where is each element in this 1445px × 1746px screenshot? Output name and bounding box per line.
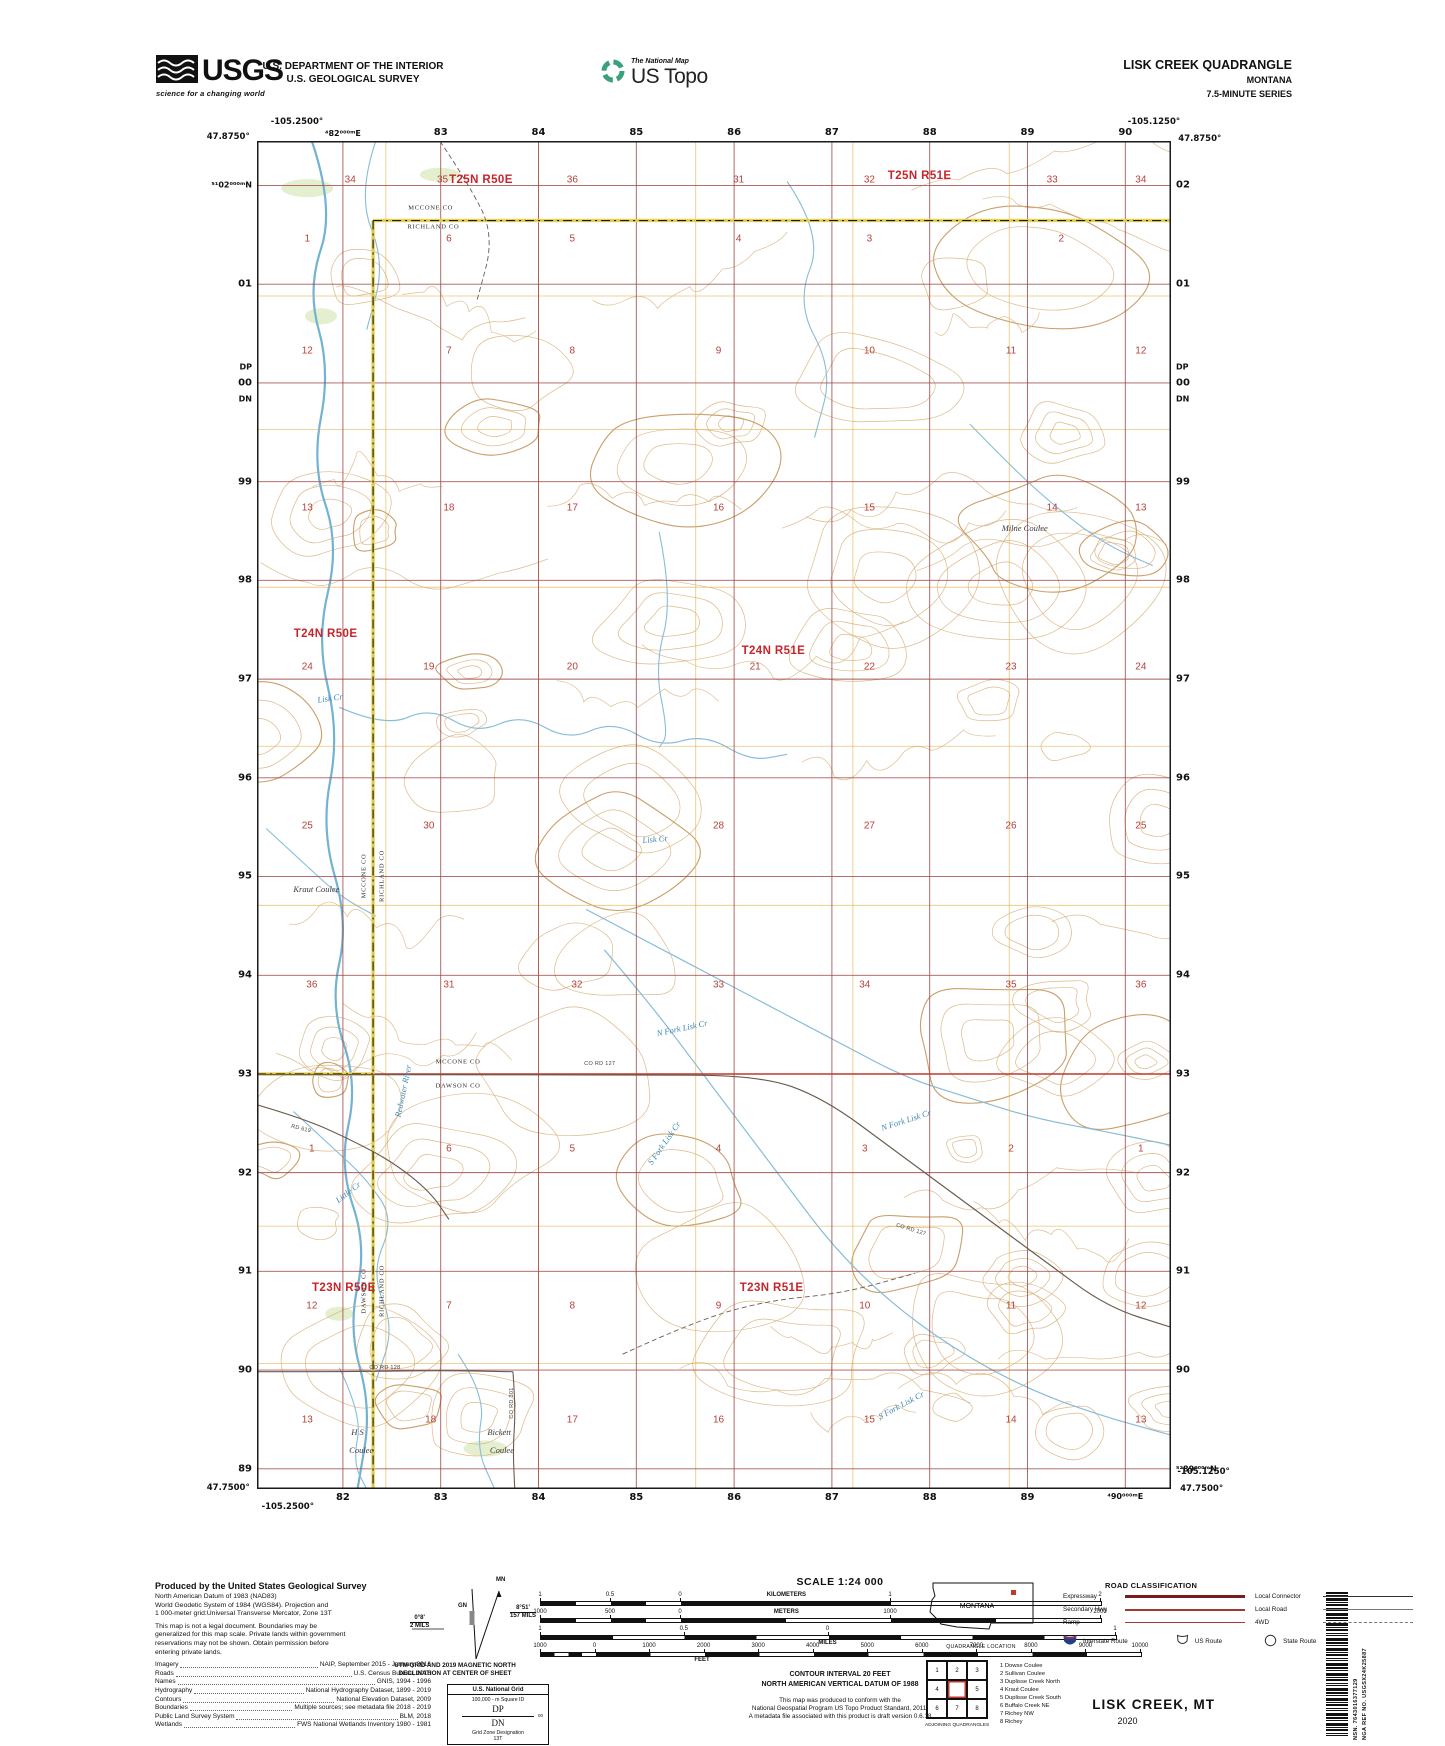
usng-subtitle: 100,000 - m Square ID — [448, 1697, 548, 1703]
credit-row: ContoursNational Elevation Dataset, 2009 — [155, 1696, 431, 1705]
grid-label-bottom: 89 — [1021, 1492, 1035, 1503]
grid-label-left: ⁵¹02⁰⁰⁰ᵐN — [211, 181, 252, 190]
grid-label-top: 89 — [1021, 127, 1035, 138]
shield-label: State Route — [1283, 1638, 1316, 1645]
grid-label-left: 01 — [238, 279, 252, 290]
grid-label-bottom: 83 — [434, 1492, 448, 1503]
datum-text: North American Datum of 1983 (NAD83)Worl… — [155, 1593, 431, 1619]
grid-label-right: 92 — [1176, 1167, 1190, 1178]
produced-by-title: Produced by the United States Geological… — [155, 1581, 431, 1591]
usng-gzd-value: 13T — [448, 1736, 548, 1742]
grid-label-bottom: 84 — [532, 1492, 546, 1503]
shield-label: Interstate Route — [1083, 1638, 1128, 1645]
grid-label-left: 99 — [238, 476, 252, 487]
adjoining-cell: 2 — [947, 1661, 967, 1680]
grid-label-left: 94 — [238, 970, 252, 981]
usng-square-2: DN — [448, 1718, 548, 1728]
adjoining-quad-name: 4 Kraut Coulee — [1000, 1686, 1061, 1694]
adjoining-cell: 7 — [947, 1699, 967, 1718]
quad-title: LISK CREEK QUADRANGLE — [1123, 58, 1292, 72]
grid-label-top: 90 — [1118, 127, 1132, 138]
corner-coord-top-right-lon: -105.1250° — [1128, 117, 1180, 127]
adjoining-cell: 1 — [927, 1661, 947, 1680]
grid-label-bottom: 87 — [825, 1492, 839, 1503]
grid-label-right: 94 — [1176, 970, 1190, 981]
ustopo-logo: The National Map US Topo — [600, 58, 708, 89]
usng-dn-left: DN — [239, 395, 252, 404]
usng-title: U.S. National Grid — [448, 1685, 548, 1695]
road-classification: ROAD CLASSIFICATION ExpresswayLocal Conn… — [1063, 1581, 1413, 1649]
credit-row: HydrographyNational Hydrography Dataset,… — [155, 1687, 431, 1696]
road-classification-title: ROAD CLASSIFICATION — [1063, 1581, 1413, 1590]
quadrangle-location-caption: QUADRANGLE LOCATION — [925, 1644, 1037, 1650]
grid-label-top: 87 — [825, 127, 839, 138]
scale-title: SCALE 1:24 000 — [540, 1576, 1140, 1588]
scale-bars: 10.5012KILOMETERS1000500010002000METERS1… — [540, 1592, 1140, 1660]
grid-label-bottom: 88 — [923, 1492, 937, 1503]
department-heading: U.S. DEPARTMENT OF THE INTERIOR U.S. GEO… — [258, 60, 448, 86]
corner-coord-top-right-lat: 47.8750° — [1178, 134, 1221, 144]
barcode-nsn: NSN. 7643016377129 — [1353, 1678, 1359, 1740]
legal-text: This map is not a legal document. Bounda… — [155, 1623, 431, 1657]
adjoining-caption: ADJOINING QUADRANGLES — [925, 1723, 989, 1728]
interstate-shield — [1063, 1634, 1077, 1649]
grid-label-right: 99 — [1176, 476, 1190, 487]
usng-dp-left: DP — [239, 362, 252, 371]
credit-row: NamesGNIS, 1994 - 1996 — [155, 1678, 431, 1687]
scale-bar-meters: 1000500010002000METERS — [540, 1609, 1140, 1626]
grid-label-left: 89 — [238, 1463, 252, 1474]
usng-box: U.S. National Grid 100,000 - m Square ID… — [447, 1684, 549, 1745]
road-class-row: Secondary HwyLocal Road — [1063, 1603, 1413, 1616]
grid-label-right: 02 — [1176, 180, 1190, 191]
dept-line2: U.S. GEOLOGICAL SURVEY — [258, 73, 448, 86]
adjoining-grid: 12345678 — [926, 1660, 988, 1719]
dept-line1: U.S. DEPARTMENT OF THE INTERIOR — [258, 60, 448, 73]
adjoining-quad-name: 3 Duplisse Creek North — [1000, 1678, 1061, 1686]
adjoining-cell-current — [947, 1680, 967, 1699]
quadrangle-location: MONTANA QUADRANGLE LOCATION — [925, 1578, 1037, 1650]
usng-tick: 00 — [538, 1713, 543, 1718]
grid-label-left: 98 — [238, 575, 252, 586]
usng-dp-right: DP — [1176, 362, 1189, 371]
corner-coord-bottom-right-lat: 47.7500° — [1180, 1484, 1223, 1494]
credit-row: BoundariesMultiple sources; see metadata… — [155, 1704, 431, 1713]
quad-state: MONTANA — [1123, 75, 1292, 85]
grid-label-left: 91 — [238, 1266, 252, 1277]
grid-label-left: 92 — [238, 1167, 252, 1178]
scale-bar-kilometers: 10.5012KILOMETERS — [540, 1592, 1140, 1609]
grid-label-left: 90 — [238, 1365, 252, 1376]
usgs-tagline: science for a changing world — [156, 89, 346, 98]
sheet-year: 2020 — [1040, 1716, 1215, 1726]
grid-label-left: 96 — [238, 772, 252, 783]
mn-declination-value: 8°51' 157 MILS — [510, 1605, 536, 1620]
national-map-label: The National Map — [631, 58, 708, 65]
grid-north-label: GN — [458, 1603, 467, 1609]
declination-caption: UTM GRID AND 2019 MAGNETIC NORTH DECLINA… — [330, 1662, 580, 1678]
grid-label-left: 93 — [238, 1068, 252, 1079]
corner-coord-top-left-lon: -105.2500° — [271, 117, 323, 127]
grid-label-top: 88 — [923, 127, 937, 138]
grid-label-right: 98 — [1176, 575, 1190, 586]
grid-label-right: 00 — [1176, 377, 1190, 388]
scale-bar-miles: 10.501MILES — [540, 1626, 1140, 1643]
grid-label-top: 83 — [434, 127, 448, 138]
map-area: T25N R50ET25N R51ET24N R50ET24N R51ET23N… — [257, 141, 1171, 1489]
ustopo-label: US Topo — [631, 65, 708, 89]
adjoining-cell: 5 — [967, 1680, 987, 1699]
grid-label-right: 01 — [1176, 279, 1190, 290]
adjoining-quad-name: 1 Dowse Coulee — [1000, 1662, 1061, 1670]
montana-outline: MONTANA — [925, 1578, 1037, 1636]
montana-label: MONTANA — [960, 1603, 995, 1610]
grid-label-left: 00 — [238, 377, 252, 388]
corner-coord-top-left-lat: 47.8750° — [207, 132, 250, 142]
corner-coord-bottom-right-lon: -105.1250° — [1177, 1467, 1229, 1477]
usng-square-1: DP — [448, 1704, 548, 1714]
grid-label-right: 96 — [1176, 772, 1190, 783]
shield-label: US Route — [1195, 1638, 1222, 1645]
usgs-wave-icon — [156, 55, 198, 88]
grid-label-bottom: 85 — [629, 1492, 643, 1503]
adjoining-cell: 4 — [927, 1680, 947, 1699]
adjoining-cell: 6 — [927, 1699, 947, 1718]
grid-label-left: 95 — [238, 871, 252, 882]
grid-label-bottom: ⁴90⁰⁰⁰ᵐE — [1107, 1492, 1143, 1501]
sheet-name: LISK CREEK, MT — [1040, 1697, 1215, 1712]
quad-series: 7.5-MINUTE SERIES — [1123, 89, 1292, 99]
grid-label-bottom: 82 — [336, 1492, 350, 1503]
barcode — [1326, 1592, 1348, 1740]
usng-dn-right: DN — [1176, 395, 1189, 404]
grid-label-top: ⁴82⁰⁰⁰ᵐE — [325, 129, 361, 138]
produced-by-block: Produced by the United States Geological… — [155, 1581, 431, 1730]
grid-label-left: 97 — [238, 674, 252, 685]
adjoining-cell: 3 — [967, 1661, 987, 1680]
gn-declination-value: 0°8' 2 MILS — [410, 1615, 429, 1630]
grid-label-right: 91 — [1176, 1266, 1190, 1277]
us-route-shield — [1176, 1634, 1189, 1649]
credit-row: WetlandsFWS National Wetlands Inventory … — [155, 1721, 431, 1730]
state-route-circle — [1264, 1634, 1277, 1649]
grid-label-top: 86 — [727, 127, 741, 138]
adjoining-cell: 8 — [967, 1699, 987, 1718]
ustopo-ring-icon — [600, 58, 626, 89]
road-class-row: Ramp4WD — [1063, 1616, 1413, 1629]
corner-coord-bottom-left-lat: 47.7500° — [207, 1483, 250, 1493]
grid-label-top: 85 — [629, 127, 643, 138]
road-class-row: ExpresswayLocal Connector — [1063, 1590, 1413, 1603]
grid-label-right: 97 — [1176, 674, 1190, 685]
publication-block: LISK CREEK, MT 2020 — [1040, 1697, 1215, 1726]
barcode-nga-ref: NGA REF NO. USGSX24K25887 — [1362, 1648, 1368, 1740]
usgs-topo-sheet: USGS science for a changing world U.S. D… — [0, 0, 1445, 1746]
grid-label-right: 93 — [1176, 1068, 1190, 1079]
grid-label-right: 90 — [1176, 1365, 1190, 1376]
quad-location-marker — [1011, 1590, 1016, 1595]
adjoining-quadrangles: 12345678 ADJOINING QUADRANGLES — [925, 1660, 989, 1728]
quadrangle-heading: LISK CREEK QUADRANGLE MONTANA 7.5-MINUTE… — [1123, 58, 1292, 99]
credit-row: Public Land Survey SystemBLM, 2018 — [155, 1713, 431, 1722]
corner-coord-bottom-left-lon: -105.2500° — [262, 1502, 314, 1512]
grid-label-right: 95 — [1176, 871, 1190, 882]
topo-map-canvas — [257, 141, 1171, 1489]
grid-label-top: 84 — [532, 127, 546, 138]
scale-bar-feet: 1000010002000300040005000600070008000900… — [540, 1643, 1140, 1660]
adjoining-quad-name: 2 Sullivan Coulee — [1000, 1670, 1061, 1678]
scale-block: SCALE 1:24 000 10.5012KILOMETERS10005000… — [540, 1576, 1140, 1660]
grid-label-bottom: 86 — [727, 1492, 741, 1503]
magnetic-north-label: MN — [496, 1577, 505, 1583]
